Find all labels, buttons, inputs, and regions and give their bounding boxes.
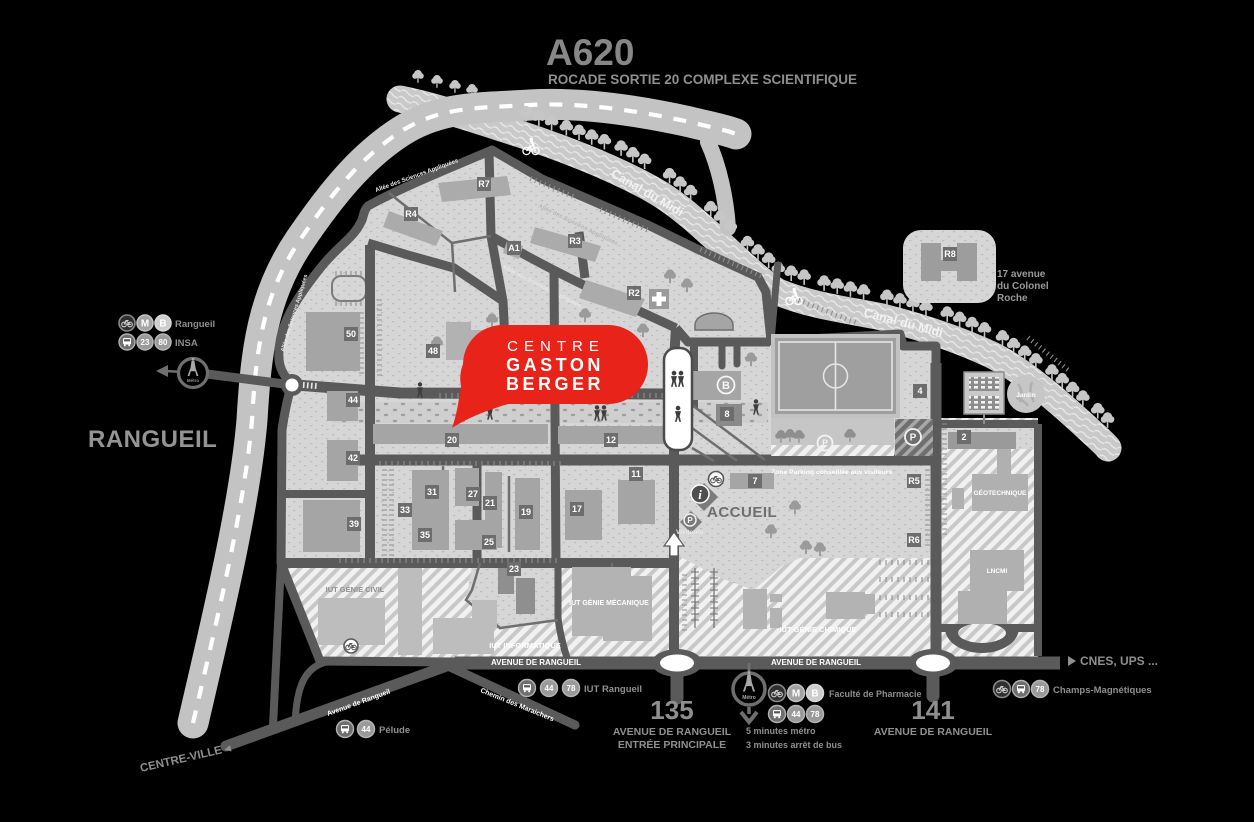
svg-text:B: B <box>811 689 818 700</box>
svg-text:50: 50 <box>346 329 356 339</box>
svg-text:44: 44 <box>348 395 358 405</box>
svg-text:IUT Rangueil: IUT Rangueil <box>584 684 642 695</box>
svg-text:GASTON: GASTON <box>506 355 604 375</box>
svg-text:19: 19 <box>521 507 531 517</box>
svg-text:23: 23 <box>141 338 150 347</box>
svg-text:44: 44 <box>545 684 554 693</box>
svg-text:3 minutes arrêt de bus: 3 minutes arrêt de bus <box>746 740 842 750</box>
svg-text:Métro: Métro <box>742 695 756 701</box>
svg-text:44: 44 <box>362 725 371 734</box>
svg-text:R2: R2 <box>628 288 640 298</box>
svg-text:B: B <box>159 319 166 330</box>
svg-text:GÉOTECHNIQUE: GÉOTECHNIQUE <box>974 488 1027 497</box>
svg-text:Faculté de Pharmacie: Faculté de Pharmacie <box>829 689 922 699</box>
svg-text:42: 42 <box>348 453 358 463</box>
svg-text:R5: R5 <box>908 476 920 486</box>
svg-text:11: 11 <box>631 469 641 479</box>
svg-text:AVENUE DE RANGUEIL: AVENUE DE RANGUEIL <box>613 726 732 738</box>
svg-text:78: 78 <box>567 684 576 693</box>
svg-text:P: P <box>910 433 917 444</box>
svg-text:IUT GÉNIE MÉCANIQUE: IUT GÉNIE MÉCANIQUE <box>569 598 649 607</box>
svg-text:du Colonel: du Colonel <box>997 281 1049 292</box>
svg-text:M: M <box>141 319 149 330</box>
svg-text:39: 39 <box>349 519 359 529</box>
svg-text:5 minutes métro: 5 minutes métro <box>746 726 816 736</box>
svg-text:R8: R8 <box>944 249 956 259</box>
svg-text:Rangueil: Rangueil <box>175 319 215 330</box>
svg-text:135: 135 <box>650 695 693 725</box>
svg-text:27: 27 <box>468 489 478 499</box>
svg-text:IUT GÉNIE CIVIL: IUT GÉNIE CIVIL <box>326 585 385 594</box>
svg-text:78: 78 <box>811 710 820 719</box>
svg-text:2: 2 <box>961 432 966 442</box>
svg-text:17: 17 <box>572 504 582 514</box>
svg-text:48: 48 <box>428 346 438 356</box>
svg-text:Roche: Roche <box>997 293 1028 304</box>
svg-text:31: 31 <box>427 487 437 497</box>
svg-text:20: 20 <box>447 435 457 445</box>
svg-text:LNCMI: LNCMI <box>987 568 1008 575</box>
svg-text:23: 23 <box>509 564 519 574</box>
svg-text:INSA: INSA <box>175 338 198 349</box>
svg-text:A1: A1 <box>508 243 520 253</box>
svg-text:R6: R6 <box>908 535 920 545</box>
svg-text:RANGUEIL: RANGUEIL <box>88 426 217 453</box>
svg-text:B: B <box>722 380 730 392</box>
svg-text:Pélude: Pélude <box>379 725 410 736</box>
svg-text:21: 21 <box>485 498 495 508</box>
svg-text:8: 8 <box>724 409 729 419</box>
svg-text:Métro: Métro <box>187 378 200 383</box>
svg-text:A620: A620 <box>546 32 634 73</box>
svg-text:P: P <box>822 438 828 448</box>
svg-text:AVENUE DE RANGUEIL: AVENUE DE RANGUEIL <box>491 658 581 667</box>
svg-text:AVENUE DE RANGUEIL: AVENUE DE RANGUEIL <box>771 658 861 667</box>
svg-text:R3: R3 <box>569 236 581 246</box>
svg-text:BERGER: BERGER <box>506 374 604 394</box>
svg-text:25: 25 <box>484 537 494 547</box>
svg-text:33: 33 <box>400 505 410 515</box>
svg-text:AVENUE DE RANGUEIL: AVENUE DE RANGUEIL <box>874 726 993 738</box>
svg-text:44: 44 <box>792 710 801 719</box>
svg-text:ROCADE SORTIE 20 COMPLEXE SCIE: ROCADE SORTIE 20 COMPLEXE SCIENTIFIQUE <box>548 72 857 87</box>
svg-text:4: 4 <box>917 386 922 396</box>
svg-text:Visiteurs: Visiteurs <box>676 529 704 536</box>
svg-text:141: 141 <box>911 695 954 725</box>
svg-text:78: 78 <box>1036 685 1045 694</box>
svg-text:P: P <box>687 516 693 525</box>
svg-text:7: 7 <box>752 476 757 486</box>
svg-text:R4: R4 <box>405 209 417 219</box>
svg-text:Champs-Magnétiques: Champs-Magnétiques <box>1053 685 1152 696</box>
svg-text:12: 12 <box>606 435 616 445</box>
svg-text:M: M <box>792 689 800 700</box>
svg-text:ACCUEIL: ACCUEIL <box>707 504 777 521</box>
svg-text:17 avenue: 17 avenue <box>997 269 1046 280</box>
svg-text:IUT INFORMATIQUE: IUT INFORMATIQUE <box>489 641 561 650</box>
svg-text:35: 35 <box>420 530 430 540</box>
svg-text:IUT GÉNIE CHIMIQUE: IUT GÉNIE CHIMIQUE <box>779 625 856 634</box>
svg-text:CENTRE: CENTRE <box>507 338 605 355</box>
svg-text:i: i <box>698 487 702 502</box>
svg-text:80: 80 <box>159 338 168 347</box>
svg-text:Zone Parking conseillée aux vi: Zone Parking conseillée aux visiteurs <box>771 469 892 476</box>
svg-text:CNES, UPS ...: CNES, UPS ... <box>1080 654 1158 668</box>
svg-text:ENTRÉE PRINCIPALE: ENTRÉE PRINCIPALE <box>618 738 726 751</box>
svg-text:Jardin: Jardin <box>1016 392 1036 399</box>
svg-text:R7: R7 <box>478 179 490 189</box>
